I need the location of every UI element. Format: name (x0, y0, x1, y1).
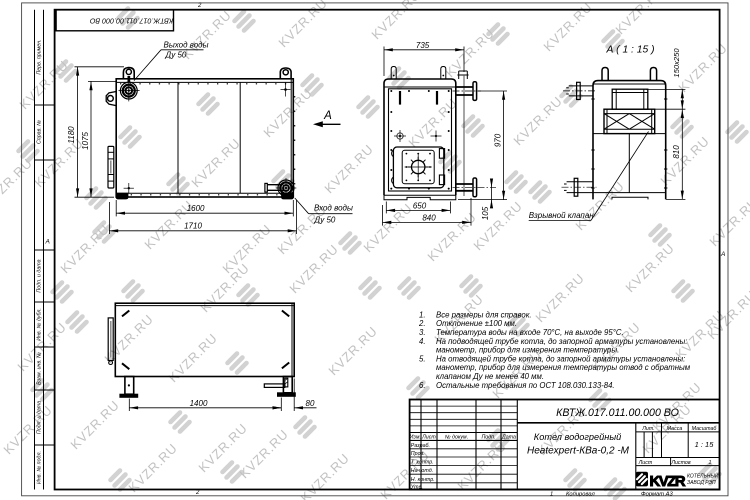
svg-text:Изм.: Изм. (410, 434, 421, 440)
svg-text:650: 650 (413, 202, 427, 211)
svg-text:1075: 1075 (81, 132, 90, 150)
svg-text:На отводящей трубе котла, до з: На отводящей трубе котла, до запорной ар… (436, 354, 685, 363)
svg-text:4.: 4. (419, 337, 426, 346)
svg-text:Взам. инв. №: Взам. инв. № (37, 352, 43, 385)
svg-text:6.: 6. (419, 381, 426, 390)
svg-text:Листов: Листов (670, 460, 691, 466)
svg-text:Остальные требования по ОСТ 10: Остальные требования по ОСТ 108.030.133-… (436, 381, 615, 390)
svg-text:А: А (45, 239, 50, 246)
svg-text:1.: 1. (419, 310, 426, 319)
svg-text:1180: 1180 (67, 126, 76, 144)
svg-text:Подп. и дата: Подп. и дата (37, 259, 43, 292)
svg-text:манометр, прибор для измерения: манометр, прибор для измерения температу… (436, 346, 619, 355)
svg-text:5.: 5. (419, 354, 426, 363)
svg-text:Подп.: Подп. (481, 434, 495, 440)
svg-text:клапаном Ду не менее 40 мм.: клапаном Ду не менее 40 мм. (436, 372, 544, 381)
svg-text:Формат А3: Формат А3 (641, 491, 673, 497)
svg-text:80: 80 (306, 399, 315, 408)
svg-text:1 : 15: 1 : 15 (695, 440, 715, 449)
svg-text:Ду 50: Ду 50 (314, 215, 336, 224)
svg-text:Все размеры для справок.: Все размеры для справок. (436, 310, 532, 319)
svg-text:KVZR: KVZR (650, 474, 686, 490)
svg-text:2: 2 (197, 3, 202, 9)
svg-text:Масса: Масса (667, 426, 683, 432)
svg-text:ЗАВОД РЭП: ЗАВОД РЭП (687, 480, 716, 486)
svg-text:№ докум.: № докум. (445, 434, 468, 440)
svg-text:Справ. №: Справ. № (37, 120, 43, 144)
svg-text:А: А (323, 110, 332, 122)
svg-text:КВТЖ.017.011.00.000 ВО: КВТЖ.017.011.00.000 ВО (89, 17, 173, 26)
svg-text:Пров.: Пров. (411, 451, 425, 457)
svg-text:А: А (720, 251, 725, 258)
svg-text:810: 810 (672, 145, 681, 159)
svg-text:3.: 3. (419, 328, 426, 337)
svg-text:970: 970 (493, 133, 502, 147)
svg-text:Вход воды: Вход воды (314, 204, 353, 213)
svg-text:Т. контр.: Т. контр. (411, 459, 434, 465)
svg-text:Инв. № дубл.: Инв. № дубл. (37, 308, 43, 341)
svg-text:На подводящей трубе котла, до: На подводящей трубе котла, до запорной а… (436, 337, 687, 346)
svg-text:Температура воды на входе 70°С: Температура воды на входе 70°С, на выход… (436, 328, 624, 337)
svg-text:2: 2 (195, 490, 200, 496)
svg-text:Ду 50: Ду 50 (165, 50, 187, 59)
svg-text:Масштаб: Масштаб (692, 426, 718, 432)
svg-text:Выход воды: Выход воды (164, 41, 209, 50)
svg-text:1600: 1600 (187, 204, 205, 213)
svg-text:Лит.: Лит. (641, 426, 654, 432)
svg-text:Инв. № подл.: Инв. № подл. (37, 451, 43, 484)
svg-text:1400: 1400 (190, 399, 208, 408)
svg-text:Дата: Дата (501, 434, 516, 440)
svg-text:105: 105 (481, 206, 490, 220)
svg-text:Лист: Лист (638, 460, 653, 466)
svg-text:Heatexpert-КВа-0,2 -М: Heatexpert-КВа-0,2 -М (527, 445, 630, 456)
svg-text:735: 735 (416, 41, 430, 50)
svg-text:Отклонение ±100 мм.: Отклонение ±100 мм. (436, 319, 517, 328)
svg-text:150х250: 150х250 (672, 48, 681, 78)
svg-text:КОТЕЛЬНЫЙ: КОТЕЛЬНЫЙ (687, 472, 719, 480)
svg-text:Взрывной клапан: Взрывной клапан (529, 211, 595, 220)
svg-text:Лист: Лист (421, 434, 436, 440)
svg-text:Утв.: Утв. (411, 485, 423, 491)
svg-text:1: 1 (550, 491, 553, 497)
svg-text:840: 840 (422, 214, 436, 223)
svg-text:2.: 2. (418, 319, 426, 328)
svg-text:КВТЖ.017.011.00.000 ВО: КВТЖ.017.011.00.000 ВО (556, 407, 679, 419)
svg-text:манометр, прибор для измерения: манометр, прибор для измерения температу… (436, 363, 691, 372)
svg-text:Нач.отд.: Нач.отд. (411, 468, 433, 474)
svg-text:1710: 1710 (184, 221, 202, 230)
svg-text:Подп. и дата: Подп. и дата (37, 401, 43, 434)
svg-text:Копировал: Копировал (566, 491, 596, 497)
svg-text:1: 1 (709, 460, 712, 466)
svg-text:А ( 1 : 15 ): А ( 1 : 15 ) (605, 45, 654, 56)
svg-text:Разраб.: Разраб. (411, 443, 430, 449)
svg-text:Н. контр.: Н. контр. (411, 477, 435, 483)
svg-text:Перв. примен.: Перв. примен. (37, 39, 43, 74)
svg-text:Котел водогрейный: Котел водогрейный (534, 432, 621, 442)
